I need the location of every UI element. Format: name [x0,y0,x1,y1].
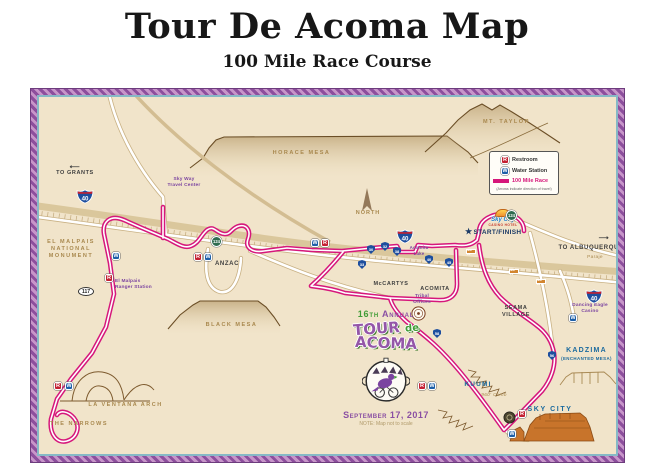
logo-date: September 17, 2017 [291,410,481,420]
label-el-malpais-monument: EL MALPAIS NATIONAL MONUMENT [43,239,99,260]
label-to-grants: ⟵ TO GRANTS [45,165,105,177]
legend-race-row: 100 Mile Race [493,178,555,184]
legend-restroom-row: R Restroom [493,156,555,164]
water-station-icon: W [508,430,516,438]
kadzima-mesa-shape [560,372,616,385]
page-title: Tour De Acoma Map [0,6,654,47]
map-legend: R Restroom W Water Station 100 Mile Race… [489,151,559,195]
legend-note: (Arrows indicate direction of travel) [493,187,555,191]
page: Tour De Acoma Map 100 Mile Race Course [0,0,654,473]
north-arrow-icon [362,188,372,211]
interstate-40-shield: 40 [76,189,94,204]
svg-text:40: 40 [591,295,598,302]
label-anzac: ANZAC [207,261,247,269]
race-logo-block: 16th Annual TOUR de ACOMA [291,309,481,427]
label-horace-mesa: HORACE MESA [249,150,354,157]
nm-117-shield: 117 [78,287,94,296]
label-kadzima: KADZIMA (ENCHANTED MESA) [534,347,618,361]
label-north: NORTH [347,210,389,217]
legend-water-row: W Water Station [493,167,555,175]
nm-124-shield: 124 [506,210,517,221]
cultural-center-seal-icon [503,411,516,424]
water-station-icon: W [112,252,120,260]
label-dancing-eagle-casino: Dancing Eagle Casino [559,303,618,315]
restroom-icon: R [194,253,202,261]
water-station-icon: W [204,253,212,261]
map-frame: ⟵ TO GRANTS Sky Way Travel Center EL MAL… [30,88,625,463]
label-paraje: Paraje [577,255,613,261]
label-to-albuquerque: TO ALBUQUERQUE [539,245,618,253]
mt-taylor-shape [425,104,560,158]
label-the-narrows: THE NARROWS [41,421,117,428]
svg-text:40: 40 [82,195,89,202]
label-mt-taylor: MT. TAYLOR [464,119,549,126]
svg-text:40: 40 [402,235,409,242]
east-arrow-icon: ⟶ [584,235,618,244]
restroom-icon: R [321,239,329,247]
start-finish-label: ★START/FINISH [465,227,555,236]
label-seama-village: SEAMA VILLAGE [485,305,547,319]
restroom-icon: R [54,382,62,390]
label-ranger-station: El Malpais Ranger Station [115,279,165,291]
sky-city-casino-logo: Sky City CASINO HOTEL [476,209,530,227]
black-mesa-shape [168,301,280,335]
label-la-ventana-arch: LA VENTANA ARCH [73,402,178,409]
label-acomita: ACOMITA [403,286,467,293]
water-station-icon: W [569,314,577,322]
water-station-icon: W [501,167,509,175]
map-canvas: ⟵ TO GRANTS Sky Way Travel Center EL MAL… [37,95,618,456]
restroom-icon: R [518,410,526,418]
restroom-icon: R [105,274,113,282]
nm-124-shield: 124 [211,236,222,247]
logo-note: NOTE: Map not to scale [291,421,481,427]
water-station-icon: W [65,382,73,390]
label-sky-way-travel-center: Sky Way Travel Center [159,177,209,189]
label-acomita-lake: Acomita Lake [401,245,437,256]
road-marker-badge: NM 22 [536,279,546,284]
acoma-emblem-icon [362,354,410,404]
interstate-40-shield: 40 [396,229,414,244]
water-station-icon: W [311,239,319,247]
start-finish-star-icon: ★ [465,227,472,236]
label-tribal-offices: Tribal Offices [401,294,443,306]
race-line-swatch [493,179,509,183]
interstate-40-shield: 40 [585,289,603,304]
road-marker-badge: NM 22 [509,269,519,274]
page-subtitle: 100 Mile Race Course [0,52,654,72]
logo-title-line2: ACOMA [291,331,482,356]
restroom-icon: R [501,156,509,164]
label-black-mesa: BLACK MESA [179,322,284,329]
road-marker-badge: NM 22 [466,249,476,254]
